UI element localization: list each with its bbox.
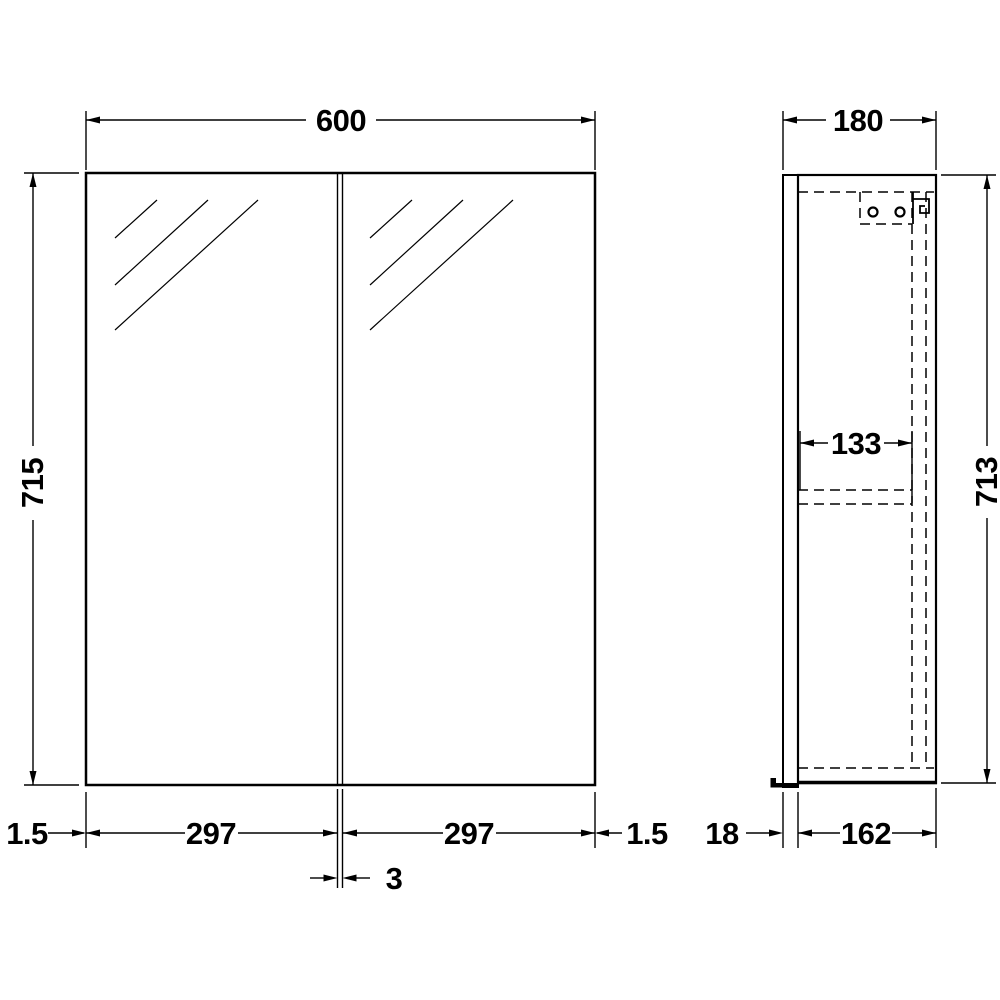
side-internal-depth-dim-label: 133	[831, 426, 881, 461]
mirror-hatch-left	[115, 200, 258, 330]
side-depth-dim-label: 180	[833, 103, 883, 138]
arrow-down-icon	[30, 771, 37, 785]
dim-side-internal-depth: 133	[800, 426, 912, 503]
dim-front-height: 715	[15, 173, 79, 785]
mirror-hatch-right	[370, 200, 513, 330]
door-divider	[338, 174, 343, 784]
arrow-left-icon	[783, 117, 797, 124]
bracket-screw-icon	[896, 208, 905, 217]
arrow-right-icon	[72, 830, 86, 837]
arrow-up-icon	[984, 175, 991, 189]
arrow-right-icon	[323, 830, 337, 837]
mirror-cabinet-drawing: 600 715 1.5 297	[0, 0, 1000, 1000]
front-height-dim-label: 715	[15, 458, 50, 508]
arrow-down-icon	[984, 769, 991, 783]
door-handle	[771, 778, 799, 788]
side-door-thickness-dim-label: 18	[705, 816, 739, 851]
arrow-right-icon	[324, 875, 338, 882]
arrow-right-icon	[922, 117, 936, 124]
wall-bracket	[860, 192, 929, 224]
arrow-right-icon	[581, 117, 595, 124]
arrow-right-icon	[898, 440, 912, 447]
arrow-left-icon	[86, 117, 100, 124]
front-door-gap-dim-label: 3	[386, 861, 403, 896]
arrow-right-icon	[922, 830, 936, 837]
technical-drawing-canvas: 600 715 1.5 297	[0, 0, 1000, 1000]
front-left-door-dim-label: 297	[186, 816, 236, 851]
dim-side-bottom-chain: 18 162	[705, 788, 936, 851]
front-right-edge-dim-label: 1.5	[626, 816, 668, 851]
side-carcass-outline	[798, 175, 936, 783]
dim-front-bottom-chain: 1.5 297 297 1.5	[6, 789, 668, 896]
dim-front-door-gap: 3	[310, 861, 403, 896]
shelf-hidden-lines	[798, 490, 912, 504]
front-width-dim-label: 600	[316, 103, 366, 138]
hidden-panel-lines	[798, 192, 934, 768]
arrow-up-icon	[30, 173, 37, 187]
arrow-right-icon	[581, 830, 595, 837]
front-view: 600 715 1.5 297	[6, 103, 668, 896]
side-height-dim-label: 713	[969, 457, 1000, 507]
arrow-left-icon	[343, 875, 357, 882]
bracket-screw-icon	[869, 208, 878, 217]
side-door-panel	[783, 175, 798, 787]
cabinet-front-outline	[86, 173, 595, 785]
front-left-edge-dim-label: 1.5	[6, 816, 48, 851]
dim-side-height: 713	[941, 175, 1000, 783]
dim-side-depth: 180	[783, 103, 936, 170]
arrow-right-icon	[769, 830, 783, 837]
side-body-depth-dim-label: 162	[841, 816, 891, 851]
side-view: 180 713 133 18	[705, 103, 1000, 851]
front-right-door-dim-label: 297	[444, 816, 494, 851]
dim-front-width: 600	[86, 103, 595, 170]
